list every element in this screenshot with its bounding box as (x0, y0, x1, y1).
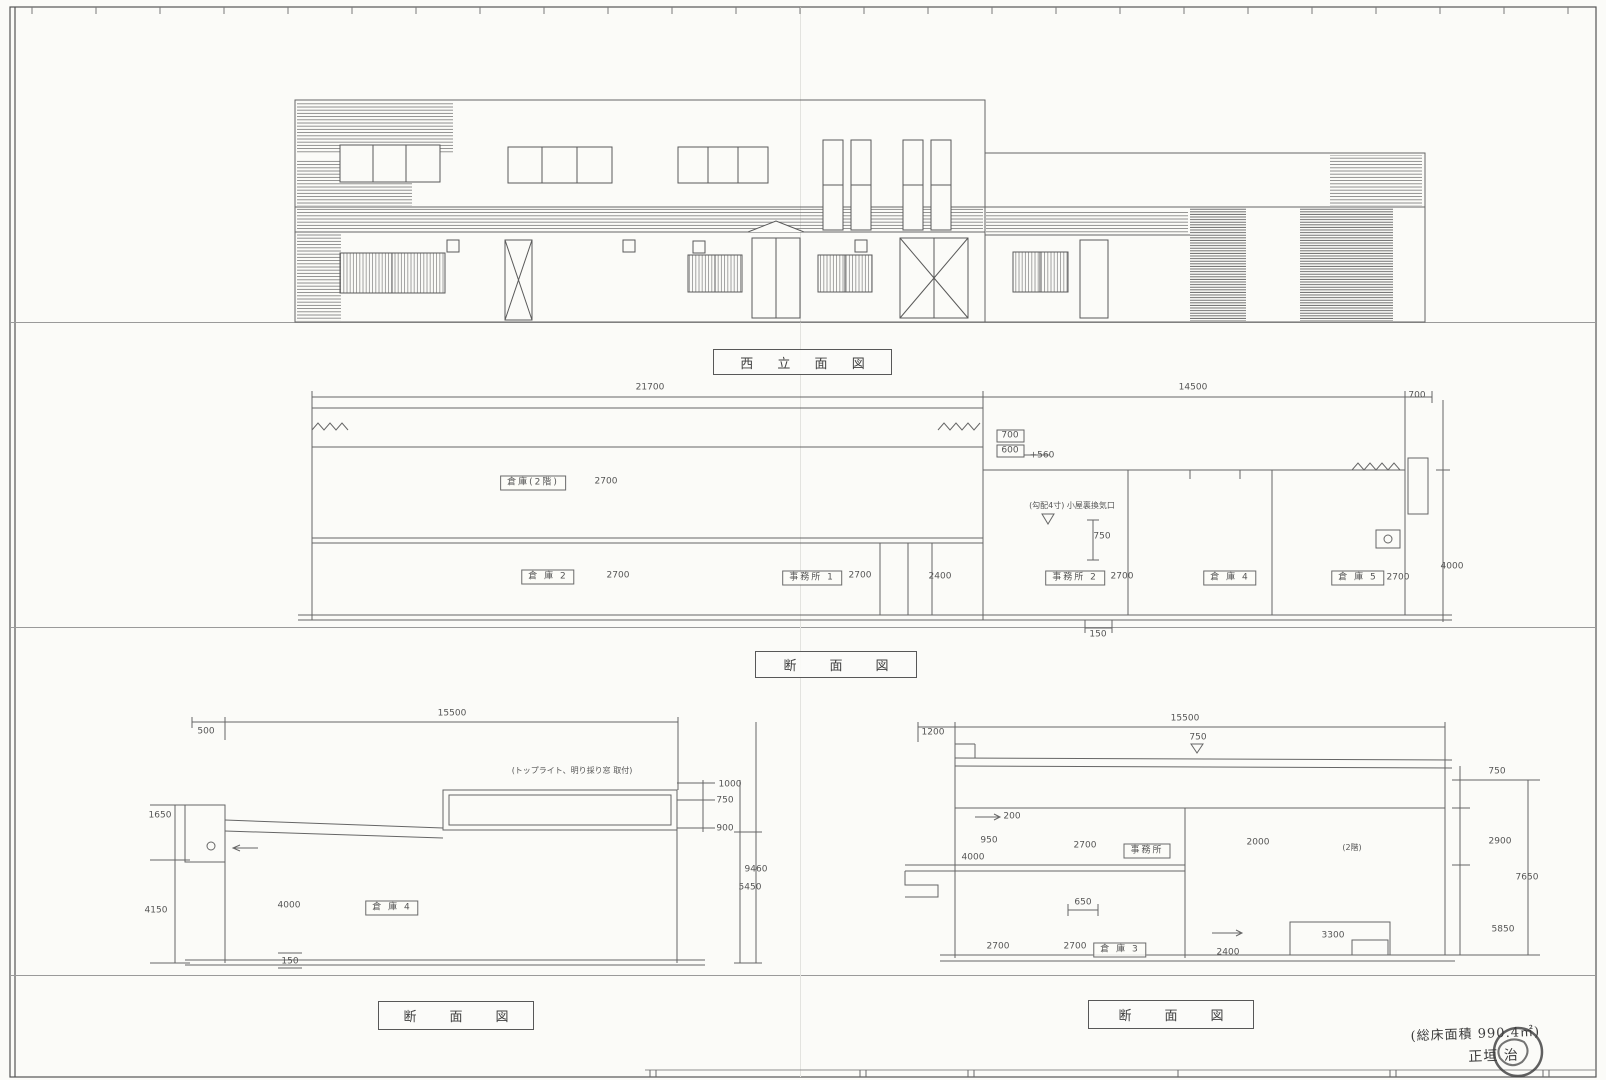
blueprint-sheet: 西 立 面 図 断 面 図 断 面 図 断 面 図 21700145007007… (0, 0, 1606, 1080)
elevation-title: 西 立 面 図 (713, 349, 892, 375)
section-right-drawing (905, 722, 1540, 961)
elevation-drawing (295, 100, 1425, 322)
section-left-drawing (150, 717, 762, 968)
title-block-fragment (645, 1070, 1596, 1077)
handwritten-area: (総床面積 990.4㎡) (1410, 1023, 1540, 1048)
handwritten-note: (総床面積 990.4㎡) 正垣 治 (1410, 1023, 1541, 1071)
section-main-drawing (298, 391, 1452, 633)
section-main-title: 断 面 図 (755, 651, 917, 678)
section-right-title: 断 面 図 (1088, 1000, 1254, 1029)
section-left-title: 断 面 図 (378, 1001, 534, 1030)
drawing-linework (0, 0, 1606, 1080)
